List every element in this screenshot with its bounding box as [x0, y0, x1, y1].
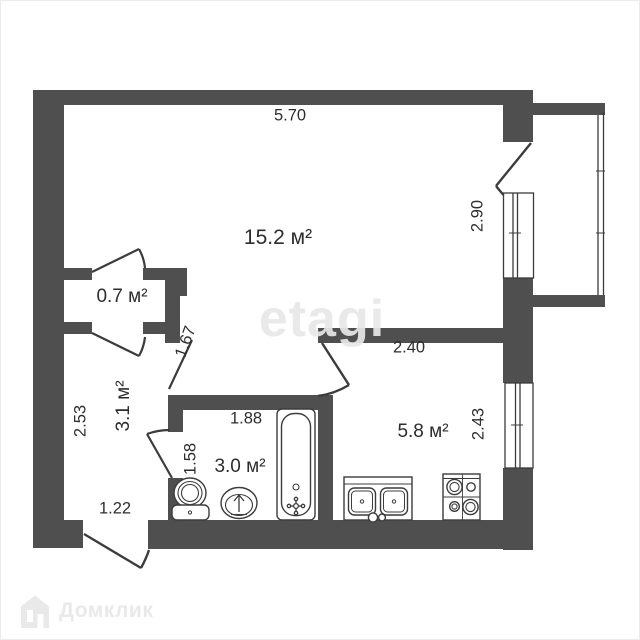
door-bathroom: [147, 430, 172, 478]
wall-closet-top-left: [63, 268, 92, 280]
washbasin: [221, 488, 257, 519]
window-living-balcony: [504, 193, 534, 278]
dim-kitchen-width: 2.40: [393, 339, 425, 358]
kitchen-faucet: [368, 513, 385, 522]
door-closet-upper: [92, 249, 145, 272]
door-entrance: [84, 534, 149, 568]
kitchen-sink: [344, 477, 412, 522]
wall-bathroom-top: [178, 395, 318, 410]
house-icon: [18, 593, 52, 629]
wall-balcony-top: [533, 103, 605, 115]
dim-hall-height: 2.53: [72, 405, 91, 437]
dim-bathroom-left: 1.58: [182, 443, 201, 475]
brand-name: Домклик: [59, 599, 153, 623]
dim-living-balcony: 2.90: [469, 200, 488, 232]
wall-closet-pier: [178, 268, 187, 296]
agency-watermark: etagi: [259, 289, 385, 349]
wall-right-pier: [503, 90, 533, 142]
room-label-bathroom: 3.0 м²: [214, 456, 265, 478]
wall-bottom: [148, 520, 533, 549]
window-kitchen: [505, 383, 533, 468]
door-balcony: [496, 143, 531, 195]
door-closet-lower: [92, 333, 145, 356]
room-label-hall: 3.1 м²: [113, 380, 135, 431]
balcony-glazing: [596, 112, 605, 295]
toilet: [172, 478, 209, 520]
wall-top: [33, 90, 533, 105]
brand-logo: Домклик: [18, 590, 178, 632]
wall-balcony-bottom: [533, 295, 605, 307]
wall-bathroom-kitchen: [318, 395, 333, 520]
dim-bathroom-width: 1.88: [230, 410, 262, 429]
wall-bottom-left: [33, 520, 83, 548]
wall-closet-right: [165, 268, 180, 343]
burner-small-1: [467, 483, 475, 491]
room-label-kitchen: 5.8 м²: [397, 421, 448, 443]
room-label-closet: 0.7 м²: [96, 286, 147, 308]
dim-top-width: 5.70: [274, 107, 306, 126]
wall-closet-bottom-left: [63, 322, 92, 334]
floor-plan: etagi Домклик 15.2 м² 0.7 м² 3.1 м² 3.0 …: [0, 0, 640, 640]
wall-bathroom-hall-upper: [168, 395, 183, 432]
door-living: [318, 343, 349, 396]
dim-kitchen-window: 2.43: [470, 408, 489, 440]
stove: [443, 474, 480, 520]
dim-entrance-width: 1.22: [99, 500, 131, 519]
bathtub: [277, 409, 315, 520]
wall-left: [33, 90, 64, 548]
room-label-living: 15.2 м²: [244, 226, 312, 250]
